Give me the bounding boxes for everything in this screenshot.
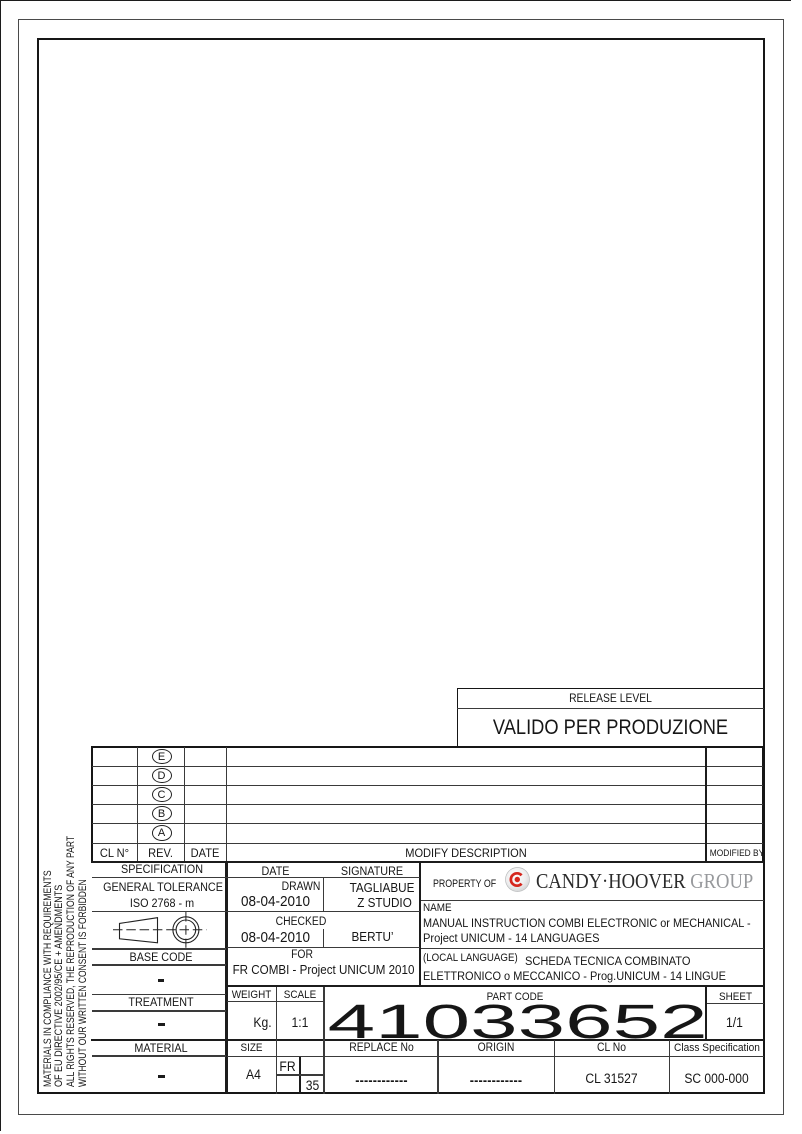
svg-text:41033652: 41033652: [328, 1000, 705, 1042]
